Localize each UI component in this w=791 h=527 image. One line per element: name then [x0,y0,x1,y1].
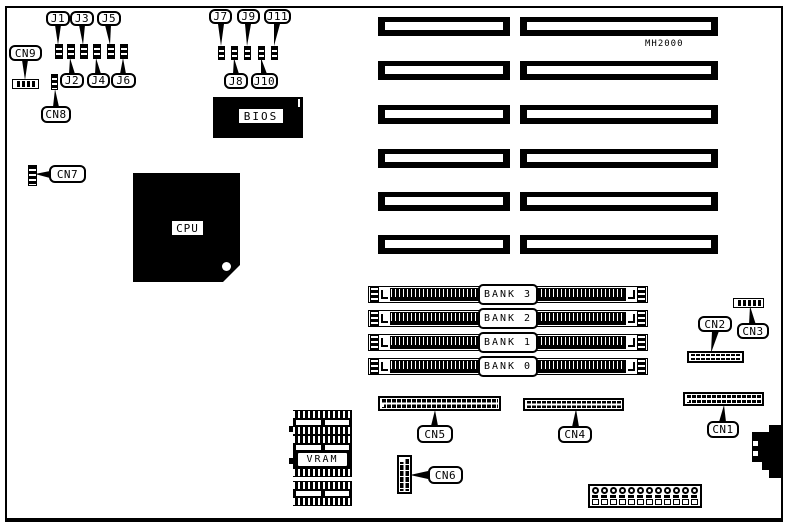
connector-label-cn2: CN2 [698,316,732,332]
keyboard-connector-notch [753,441,758,446]
simm-clip [381,314,388,323]
jumper-label-j9: J9 [237,9,260,24]
vram-bar [296,445,321,450]
jumper-label-j8: J8 [224,73,248,89]
simm-clip [628,338,635,347]
connector-label-cn7: CN7 [49,165,86,183]
keyboard-connector-notch [753,451,758,456]
simm-clip [381,338,388,347]
slot-stripe [527,110,711,118]
jumper-j1 [55,44,63,59]
jumper-j8 [231,46,238,60]
connector-cn2 [687,351,744,363]
vram-body-row [293,490,352,497]
jumper-j3 [80,44,88,59]
jumper-j4 [93,44,101,59]
power-connector-pins [590,486,700,495]
expansion-slot [378,149,510,168]
connector-label-cn3-text: CN3 [742,326,763,337]
expansion-slot [520,192,718,211]
power-connector-sockets [590,498,700,506]
jumper-label-j10: J10 [251,73,278,89]
slot-stripe [385,154,503,162]
board-model-text: MH2000 [645,39,684,49]
jumper-label-j7: J7 [209,9,232,24]
connector-label-cn9: CN9 [9,45,42,61]
bios-chip: BIOS [213,97,303,138]
slot-stripe [385,197,503,205]
jumper-label-j4-text: J4 [91,75,105,86]
bank2-label-text: BANK 2 [484,313,532,324]
vram-nub [289,426,293,432]
jumper-label-j1-text: J1 [51,13,65,24]
slot-stripe [385,240,503,248]
vram-label: VRAM [296,451,349,468]
connector-label-cn6-text: CN6 [435,470,456,481]
slot-stripe [527,22,711,30]
slot-stripe [527,197,711,205]
cpu-pin1-dot [222,262,231,271]
jumper-label-j11: J11 [264,9,291,24]
keyboard-connector-body [752,432,772,462]
simm-socket-bank0: BANK 0 [368,358,648,375]
expansion-slot [520,17,718,36]
jumper-label-j1: J1 [46,11,70,26]
jumper-label-j3-text: J3 [75,13,89,24]
jumper-j10 [258,46,265,60]
expansion-slot [520,105,718,124]
simm-end-cap [637,335,646,350]
vram-pins-row [293,426,352,435]
connector-cn9 [12,79,39,89]
vram-pins-row [293,410,352,419]
simm-socket-bank3: BANK 3 [368,286,648,303]
keyboard-connector-step [762,462,783,470]
slot-stripe [527,240,711,248]
expansion-slot [520,235,718,254]
simm-end-cap [637,359,646,374]
simm-socket-bank2: BANK 2 [368,310,648,327]
cpu-chip-label-text: CPU [176,222,199,235]
vram-pins-row [293,481,352,490]
bank1-label: BANK 1 [478,332,538,353]
connector-label-cn3: CN3 [737,323,769,339]
connector-cn4 [523,398,624,411]
connector-cn1 [683,392,764,406]
expansion-slot [378,17,510,36]
jumper-label-j4: J4 [87,73,110,88]
vram-pins-row [293,468,352,477]
jumper-label-j6: J6 [111,73,136,88]
slot-stripe [527,66,711,74]
jumper-label-j3: J3 [70,11,94,26]
cpu-chip-label: CPU [172,221,203,235]
connector-label-cn4: CN4 [558,426,592,443]
vram-body-row [293,444,352,451]
motherboard-diagram: J1 J3 J5 J2 J4 J6 CN9 CN8 J7 J9 J11 J8 J… [0,0,791,527]
simm-end-cap [370,335,379,350]
jumper-label-j11-text: J11 [267,11,288,22]
bios-chip-label-text: BIOS [244,110,279,123]
jumper-label-j9-text: J9 [241,11,255,22]
cn1-pin1-mark [686,399,689,402]
cn6-pin1-mark [400,458,404,462]
bank3-label-text: BANK 3 [484,289,532,300]
connector-label-cn8-text: CN8 [45,109,66,120]
cpu-chip: CPU [133,173,240,282]
jumper-label-j2: J2 [60,73,84,88]
slot-stripe [527,154,711,162]
power-connector [588,484,702,508]
expansion-slot [520,61,718,80]
connector-cn3 [733,298,764,308]
jumper-j6 [120,44,128,59]
jumper-label-j5: J5 [97,11,121,26]
vram-pins-row [293,435,352,444]
jumper-label-j2-text: J2 [65,75,79,86]
jumper-j7 [218,46,225,60]
vram-chip-cluster: VRAM [293,410,352,506]
bios-chip-label: BIOS [239,109,283,123]
connector-cn5 [378,396,501,411]
connector-cn7-pins [28,165,37,186]
expansion-slot [378,192,510,211]
jumper-j5 [107,44,115,59]
expansion-slot [378,235,510,254]
simm-clip [628,362,635,371]
bank0-label: BANK 0 [478,356,538,377]
expansion-slot [378,105,510,124]
vram-bar [296,491,321,496]
slot-stripe [385,110,503,118]
jumper-label-j8-text: J8 [229,76,243,87]
simm-clip [628,314,635,323]
vram-bar [325,445,350,450]
simm-clip [381,290,388,299]
connector-label-cn4-text: CN4 [564,429,585,440]
jumper-label-j6-text: J6 [116,75,130,86]
jumper-label-j7-text: J7 [213,11,227,22]
connector-label-cn6: CN6 [428,466,463,484]
vram-bar [296,420,321,425]
expansion-slot [520,149,718,168]
vram-pins-row [293,497,352,506]
connector-label-cn2-text: CN2 [704,319,725,330]
simm-end-cap [637,311,646,326]
vram-body-row [293,419,352,426]
vram-bar [325,491,350,496]
connector-label-cn9-text: CN9 [15,48,36,59]
slot-stripe [385,66,503,74]
connector-label-cn5: CN5 [417,425,453,443]
vram-label-row: VRAM [293,451,352,468]
jumper-j11 [271,46,278,60]
connector-label-cn1-text: CN1 [712,424,733,435]
jumper-label-j5-text: J5 [102,13,116,24]
connector-label-cn7-text: CN7 [57,169,78,180]
slot-stripe [385,22,503,30]
simm-clip [628,290,635,299]
connector-label-cn5-text: CN5 [424,429,445,440]
simm-end-cap [370,311,379,326]
bank1-label-text: BANK 1 [484,337,532,348]
simm-end-cap [637,287,646,302]
connector-label-cn1: CN1 [707,421,739,438]
jumper-label-j10-text: J10 [254,76,275,87]
vram-label-text: VRAM [306,454,338,465]
vram-bar [325,420,350,425]
connector-label-cn8: CN8 [41,106,71,123]
simm-end-cap [370,287,379,302]
bank3-label: BANK 3 [478,284,538,305]
jumper-j2 [67,44,75,59]
jumper-cn8 [51,74,58,90]
simm-socket-bank1: BANK 1 [368,334,648,351]
jumper-j9 [244,46,251,60]
bios-pin1-mark [298,99,300,107]
expansion-slot [378,61,510,80]
simm-end-cap [370,359,379,374]
simm-clip [381,362,388,371]
board-model-value: MH2000 [645,39,684,49]
cn5-pin1-mark [381,404,384,407]
bank0-label-text: BANK 0 [484,361,532,372]
bank2-label: BANK 2 [478,308,538,329]
